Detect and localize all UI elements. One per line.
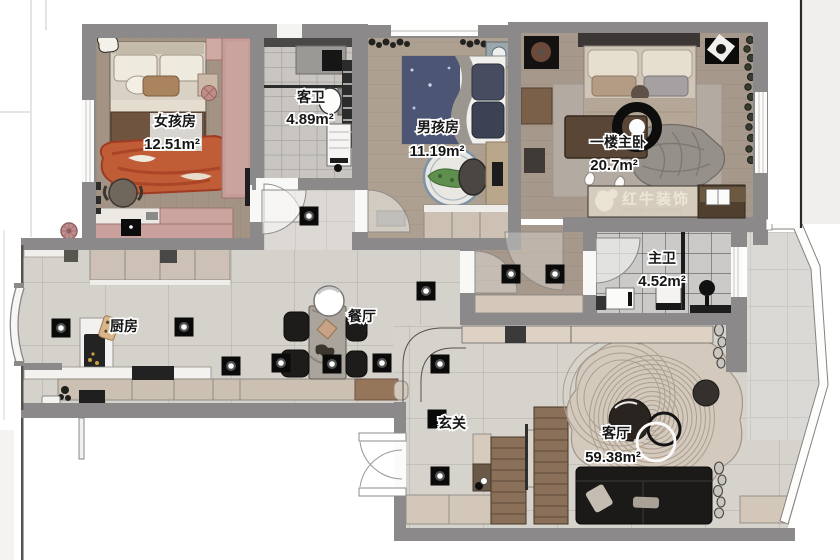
svg-text:4.52m²: 4.52m²	[638, 273, 686, 290]
svg-text:客卫: 客卫	[296, 89, 325, 105]
svg-text:厨房: 厨房	[110, 318, 138, 334]
svg-text:男孩房: 男孩房	[417, 119, 459, 135]
svg-text:主卫: 主卫	[648, 250, 676, 266]
svg-text:59.38m²: 59.38m²	[585, 449, 641, 466]
svg-text:玄关: 玄关	[438, 415, 466, 431]
svg-text:HONG NIU DECORATION: HONG NIU DECORATION	[622, 208, 682, 214]
svg-text:客厅: 客厅	[601, 425, 630, 441]
svg-text:红牛装饰: 红牛装饰	[622, 190, 690, 208]
svg-text:11.19m²: 11.19m²	[409, 143, 464, 160]
svg-text:餐厅: 餐厅	[347, 308, 376, 324]
svg-text:12.51m²: 12.51m²	[144, 136, 200, 153]
svg-text:一楼主卧: 一楼主卧	[590, 134, 646, 150]
svg-text:4.89m²: 4.89m²	[286, 111, 334, 128]
svg-text:女孩房: 女孩房	[154, 113, 196, 129]
svg-text:20.7m²: 20.7m²	[590, 157, 638, 174]
